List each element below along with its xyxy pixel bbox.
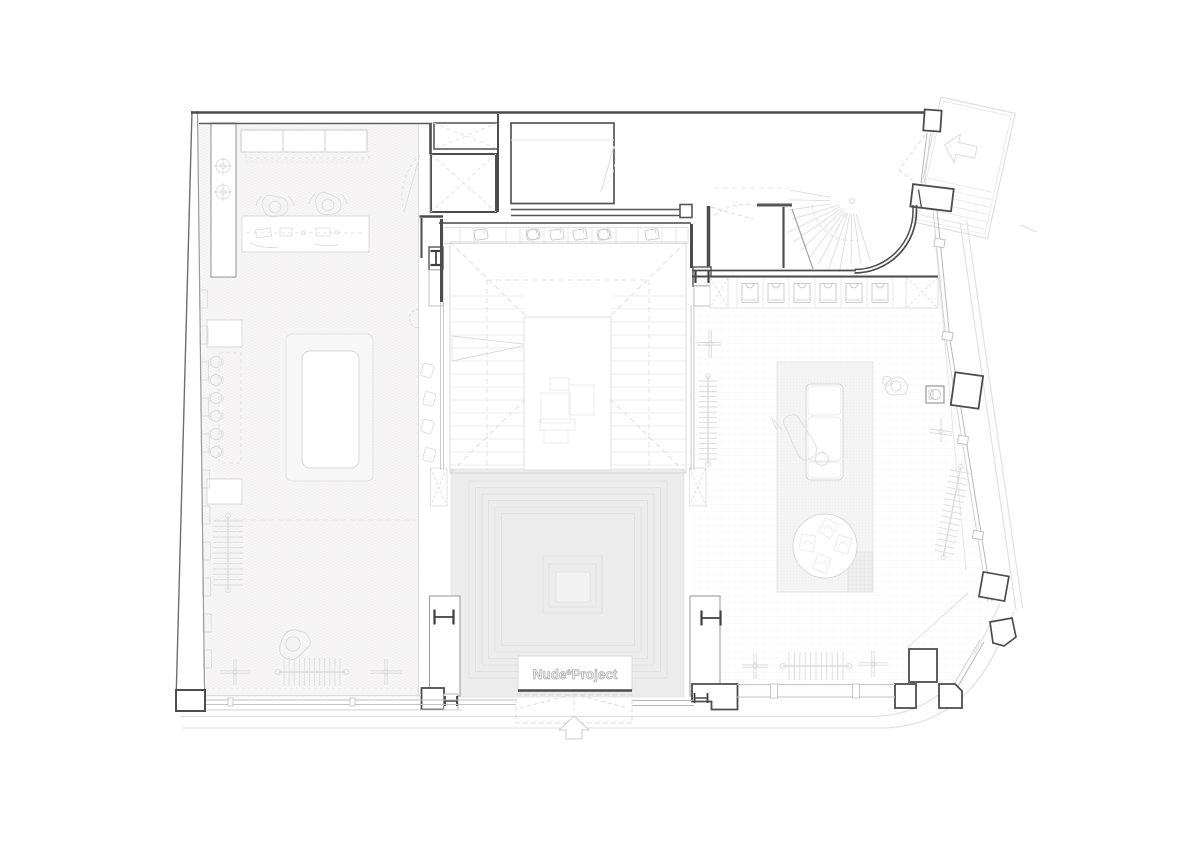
- svg-text:Nude*Project: Nude*Project: [533, 667, 618, 682]
